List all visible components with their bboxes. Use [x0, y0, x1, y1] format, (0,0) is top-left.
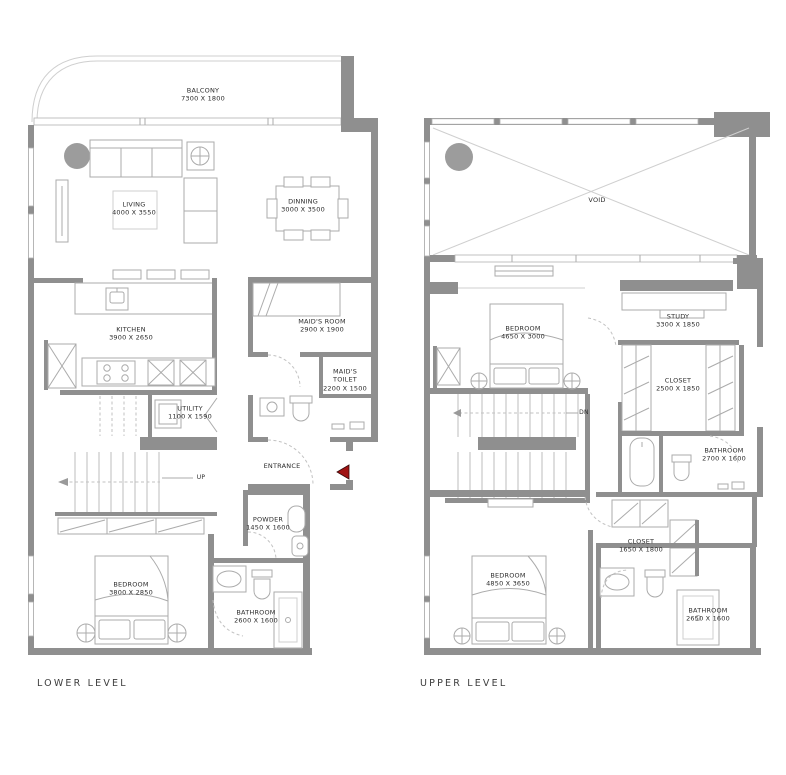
bed-icon-lower	[77, 556, 186, 644]
room-dims: 2600 X 1600	[225, 617, 287, 625]
room-label-living: LIVING 4000 X 3550	[102, 201, 166, 218]
stairs-direction: DN	[572, 409, 596, 417]
stairs-upper-icon	[445, 394, 590, 503]
room-dims: 2500 X 1850	[646, 385, 710, 393]
room-label-maids-toilet: MAID'S TOILET 2200 X 1500	[323, 367, 367, 392]
room-label-balcony: BALCONY 7300 X 1800	[158, 87, 248, 104]
room-name: DINNING	[268, 198, 338, 206]
lower-level-drawing	[28, 56, 378, 655]
void-cross	[430, 128, 757, 289]
room-name: VOID	[572, 196, 622, 204]
room-label-maids-room: MAID'S ROOM 2900 X 1900	[282, 318, 362, 335]
room-dims: 2200 X 1500	[323, 384, 367, 392]
bathroom1-area	[596, 431, 753, 497]
room-label-void: VOID	[572, 196, 622, 204]
room-label-utility: UTILITY 1100 X 1590	[165, 405, 215, 422]
tv-unit-icon	[56, 180, 68, 242]
room-name: MAID'S TOILET	[323, 367, 367, 384]
room-dims: 2700 X 1600	[698, 455, 750, 463]
lower-level-caption: LOWER LEVEL	[37, 678, 128, 689]
room-dims: 3000 X 3500	[268, 206, 338, 214]
room-name: KITCHEN	[96, 326, 166, 334]
room-name: BATHROOM	[225, 609, 287, 617]
bathroom-lower	[213, 566, 302, 648]
room-name: BEDROOM	[491, 325, 555, 333]
room-label-study: STUDY 3300 X 1850	[646, 313, 710, 330]
room-name: BALCONY	[158, 87, 248, 95]
room-label-entrance: ENTRANCE	[250, 462, 314, 470]
stove-icon	[97, 361, 135, 384]
chaise-icon	[184, 178, 217, 243]
plant-circle-icon	[64, 143, 90, 169]
room-dims: 1100 X 1590	[165, 413, 215, 421]
room-dims: 4000 X 3550	[102, 209, 166, 217]
maids-toilet	[248, 352, 378, 442]
room-name: CLOSET	[612, 538, 670, 546]
room-label-bathroom-lower: BATHROOM 2600 X 1600	[225, 609, 287, 626]
room-name: BEDROOM	[476, 572, 540, 580]
room-dims: 3300 X 1850	[646, 321, 710, 329]
room-dims: 2900 X 1900	[282, 326, 362, 334]
room-dims: 3900 X 2650	[96, 334, 166, 342]
room-dims: 3800 X 2850	[99, 589, 163, 597]
room-label-bedroom-upper-2: BEDROOM 4850 X 3650	[476, 572, 540, 589]
stairs-up-label: UP	[189, 474, 213, 482]
room-dims: 1650 X 1800	[612, 546, 670, 554]
stairs-dn-label: DN	[572, 409, 596, 417]
bed-icon-upper2	[454, 556, 565, 644]
room-dims: 4850 X 3650	[476, 580, 540, 588]
floor-plan-page: BALCONY 7300 X 1800 LIVING 4000 X 3550 D…	[0, 0, 786, 775]
room-label-bedroom-lower: BEDROOM 3800 X 2850	[99, 581, 163, 598]
bed-icon-upper1	[471, 304, 580, 389]
room-name: MAID'S ROOM	[282, 318, 362, 326]
room-label-dining: DINNING 3000 X 3500	[268, 198, 338, 215]
room-dims: 1450 X 1600	[244, 524, 292, 532]
side-table-icon	[187, 142, 214, 170]
room-label-bathroom-upper-1: BATHROOM 2700 X 1600	[698, 447, 750, 464]
room-name: POWDER	[244, 516, 292, 524]
room-name: BATHROOM	[680, 607, 736, 615]
entrance-arrow-icon	[337, 465, 349, 479]
room-label-kitchen: KITCHEN 3900 X 2650	[96, 326, 166, 343]
room-dims: 4650 X 3000	[491, 333, 555, 341]
room-name: CLOSET	[646, 377, 710, 385]
room-label-closet-1: CLOSET 2500 X 1850	[646, 377, 710, 394]
room-name: ENTRANCE	[250, 462, 314, 470]
stairs-direction: UP	[189, 474, 213, 482]
room-label-bedroom-upper-1: BEDROOM 4650 X 3000	[491, 325, 555, 342]
upper-level-caption: UPPER LEVEL	[420, 678, 507, 689]
room-name: BEDROOM	[99, 581, 163, 589]
room-name: LIVING	[102, 201, 166, 209]
room-name: BATHROOM	[698, 447, 750, 455]
room-label-closet-2: CLOSET 1650 X 1800	[612, 538, 670, 555]
room-label-bathroom-upper-2: BATHROOM 2650 X 1600	[680, 607, 736, 624]
room-name: UTILITY	[165, 405, 215, 413]
room-dims: 7300 X 1800	[158, 95, 248, 103]
closet2-wardrobes-icon	[585, 497, 699, 576]
room-dims: 2650 X 1600	[680, 615, 736, 623]
room-label-powder: POWDER 1450 X 1600	[244, 516, 292, 533]
room-name: STUDY	[646, 313, 710, 321]
sofa-icon	[90, 140, 182, 177]
